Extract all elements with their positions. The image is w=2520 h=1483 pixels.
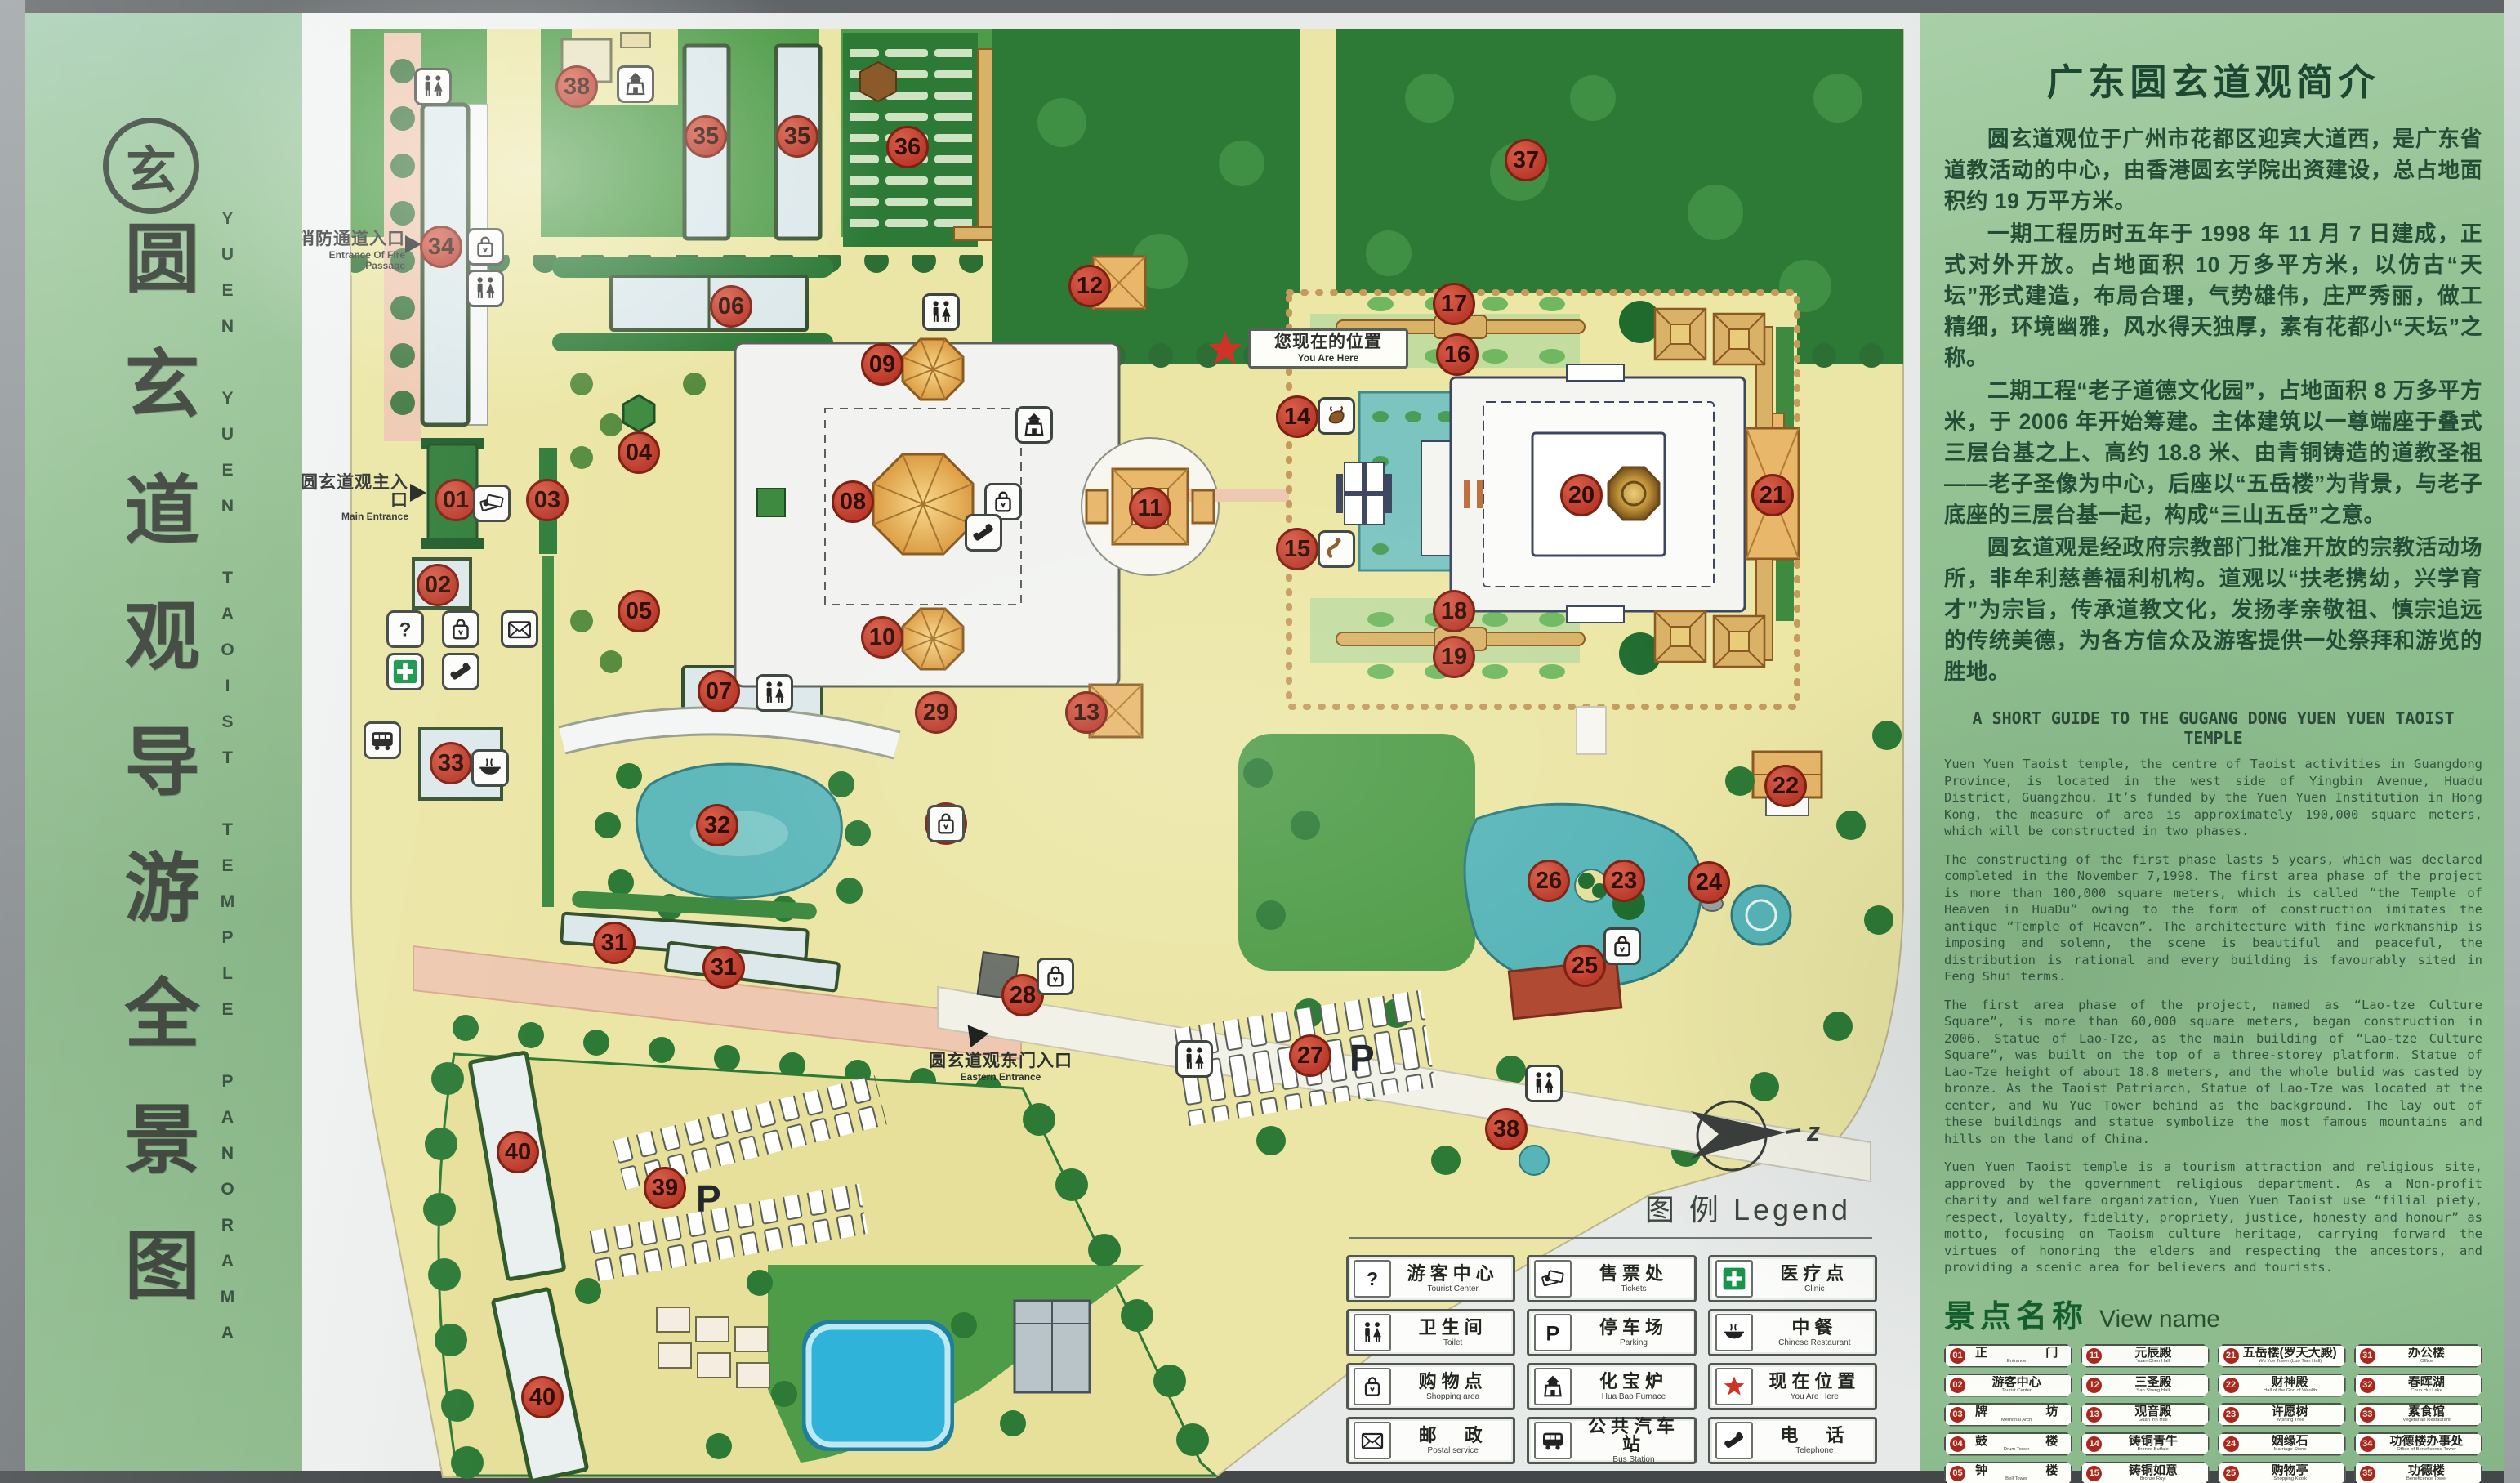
view-name-item-13: 13 观音殿Guan Yin Hall (2081, 1403, 2209, 1427)
signboard-photo: 消防通道入口 Entrance Of Fire Passage 圆玄道观主入口 … (0, 0, 2520, 1483)
view-name-item-11: 11 元辰殿Yuan Chen Hall (2081, 1344, 2209, 1368)
legend-item: 售票处Tickets (1527, 1255, 1696, 1302)
intro-paragraph-cn: 圆玄道观位于广州市花都区迎宾大道西，是广东省道教活动的中心，由香港圆玄学院出资建… (1944, 123, 2482, 217)
legend-item: 中餐Chinese Restaurant (1708, 1309, 1877, 1356)
legend-item: 医疗点Clinic (1708, 1255, 1877, 1302)
intro-paragraph-en: The constructing of the first phase last… (1944, 851, 2482, 985)
panorama-title-en: YUEN YUEN TAOIST TEMPLE PANORAMA (217, 209, 237, 1360)
legend-item: 卫生间Toilet (1346, 1309, 1515, 1356)
toilet-icon (1354, 1314, 1391, 1351)
restaurant-icon (1715, 1314, 1753, 1351)
view-name-item-33: 33 素食馆Vegetarian Restaurant (2354, 1403, 2482, 1427)
view-name-column: 11 元辰殿Yuan Chen Hall12 三圣殿San Sheng Hall… (2081, 1344, 2209, 1483)
compass-icon: z (1681, 1097, 1828, 1178)
svg-text:?: ? (1367, 1268, 1378, 1289)
legend-item: 电 话Telephone (1708, 1417, 1877, 1464)
legend-item: P 停车场Parking (1527, 1309, 1696, 1356)
intro-paragraph-cn: 二期工程“老子道德文化园”，占地面积 8 万多平方米，于 2006 年开始筹建。… (1944, 375, 2482, 530)
svg-text:P: P (1546, 1322, 1560, 1345)
here-icon (1715, 1368, 1753, 1405)
legend-title: 图 例 Legend (1585, 1186, 1911, 1229)
intro-paragraph-cn: 圆玄道观是经政府宗教部门批准开放的宗教活动场所，非牟利慈善福利机构。道观以“扶老… (1944, 532, 2482, 687)
view-name-column: 01 正门Entrance02 游客中心Tourist Center03 牌坊M… (1944, 1344, 2072, 1483)
furnace-icon (1534, 1368, 1572, 1405)
taoist-logo-icon: 玄 (103, 118, 199, 214)
view-name-header: 景点名称View name (1944, 1291, 2482, 1336)
intro-paragraph-en: The first area phase of the project, nam… (1944, 997, 2482, 1148)
view-name-item-32: 32 春晖湖Chun Hui Lake (2354, 1374, 2482, 1397)
intro-title: 广东圆玄道观简介 (1944, 52, 2482, 105)
intro-title-en: A SHORT GUIDE TO THE GUGANG DONG YUEN YU… (1944, 708, 2482, 748)
view-name-item-22: 22 财神殿Hall of the God of Wealth (2218, 1374, 2346, 1397)
view-name-item-14: 14 铸铜青牛Bronze Buffalo (2081, 1432, 2209, 1456)
view-name-item-02: 02 游客中心Tourist Center (1944, 1374, 2072, 1397)
legend-item: 购物点Shopping area (1346, 1363, 1515, 1410)
view-name-item-34: 34 功德楼办事处Office of Beneficence Tower (2354, 1432, 2482, 1456)
phone-icon (1715, 1422, 1753, 1459)
intro-paragraph-en: Yuen Yuen Taoist temple is a tourism att… (1944, 1159, 2482, 1276)
view-name-item-05: 05 钟楼Bell Tower (1944, 1462, 2072, 1483)
question-icon: ? (1354, 1260, 1391, 1298)
intro-paragraph-en: Yuen Yuen Taoist temple, the centre of T… (1944, 756, 2482, 840)
view-name-column: 21 五岳楼(罗天大殿)Wu Yue Tower (Luo Tian Hall)… (2218, 1344, 2346, 1483)
legend-divider (1349, 1237, 1872, 1239)
legend-panel: ? 游客中心Tourist Center 售票处Tickets 医疗点Clini… (1345, 1250, 1879, 1467)
view-name-item-25: 25 购物亭Shopping Kiosk (2218, 1462, 2346, 1483)
view-name-item-21: 21 五岳楼(罗天大殿)Wu Yue Tower (Luo Tian Hall) (2218, 1344, 2346, 1368)
view-name-item-04: 04 鼓楼Drum Tower (1944, 1432, 2072, 1456)
panorama-title-cn: 圆玄道观导游全景图 (101, 219, 225, 1351)
title-strip: 玄 圆玄道观导游全景图 YUEN YUEN TAOIST TEMPLE PANO… (25, 13, 302, 1471)
view-name-item-23: 23 许愿树Wishing Tree (2218, 1403, 2346, 1427)
view-name-list: 01 正门Entrance02 游客中心Tourist Center03 牌坊M… (1944, 1344, 2482, 1483)
parking-icon: P (1534, 1314, 1572, 1351)
legend-item: 化宝炉Hua Bao Furnace (1527, 1363, 1696, 1410)
intro-paragraph-cn: 一期工程历时五年于 1998 年 11 月 7 日建成，正式对外开放。占地面积 … (1944, 218, 2482, 373)
view-name-item-15: 15 铸铜如意Bronze Ruyi (2081, 1462, 2209, 1483)
view-name-item-01: 01 正门Entrance (1944, 1344, 2072, 1368)
legend-item: 公共汽车站Bus Station (1527, 1417, 1696, 1464)
view-name-item-24: 24 姻缘石Marriage Stone (2218, 1432, 2346, 1456)
ticket-icon (1534, 1260, 1572, 1298)
view-name-item-03: 03 牌坊Memorial Arch (1944, 1403, 2072, 1427)
view-name-column: 31 办公楼Office32 春晖湖Chun Hui Lake33 素食馆Veg… (2354, 1344, 2482, 1483)
post-icon (1354, 1422, 1391, 1459)
legend-item: 邮 政Postal service (1346, 1417, 1515, 1464)
photo-frame-right (2504, 0, 2520, 1483)
legend-item: ? 游客中心Tourist Center (1346, 1255, 1515, 1302)
view-name-item-35: 35 功德楼Beneficence Tower (2354, 1462, 2482, 1483)
view-name-item-12: 12 三圣殿San Sheng Hall (2081, 1374, 2209, 1397)
photo-frame-top (0, 0, 2520, 13)
bus-icon (1534, 1422, 1572, 1459)
info-panel: 广东圆玄道观简介 圆玄道观位于广州市花都区迎宾大道西，是广东省道教活动的中心，由… (1920, 13, 2504, 1471)
clinic-icon (1715, 1260, 1753, 1298)
photo-frame-left (0, 0, 25, 1483)
view-name-item-31: 31 办公楼Office (2354, 1344, 2482, 1368)
shopping-icon (1354, 1368, 1391, 1405)
legend-item: 现在位置You Are Here (1708, 1363, 1877, 1410)
svg-text:z: z (1806, 1117, 1820, 1146)
